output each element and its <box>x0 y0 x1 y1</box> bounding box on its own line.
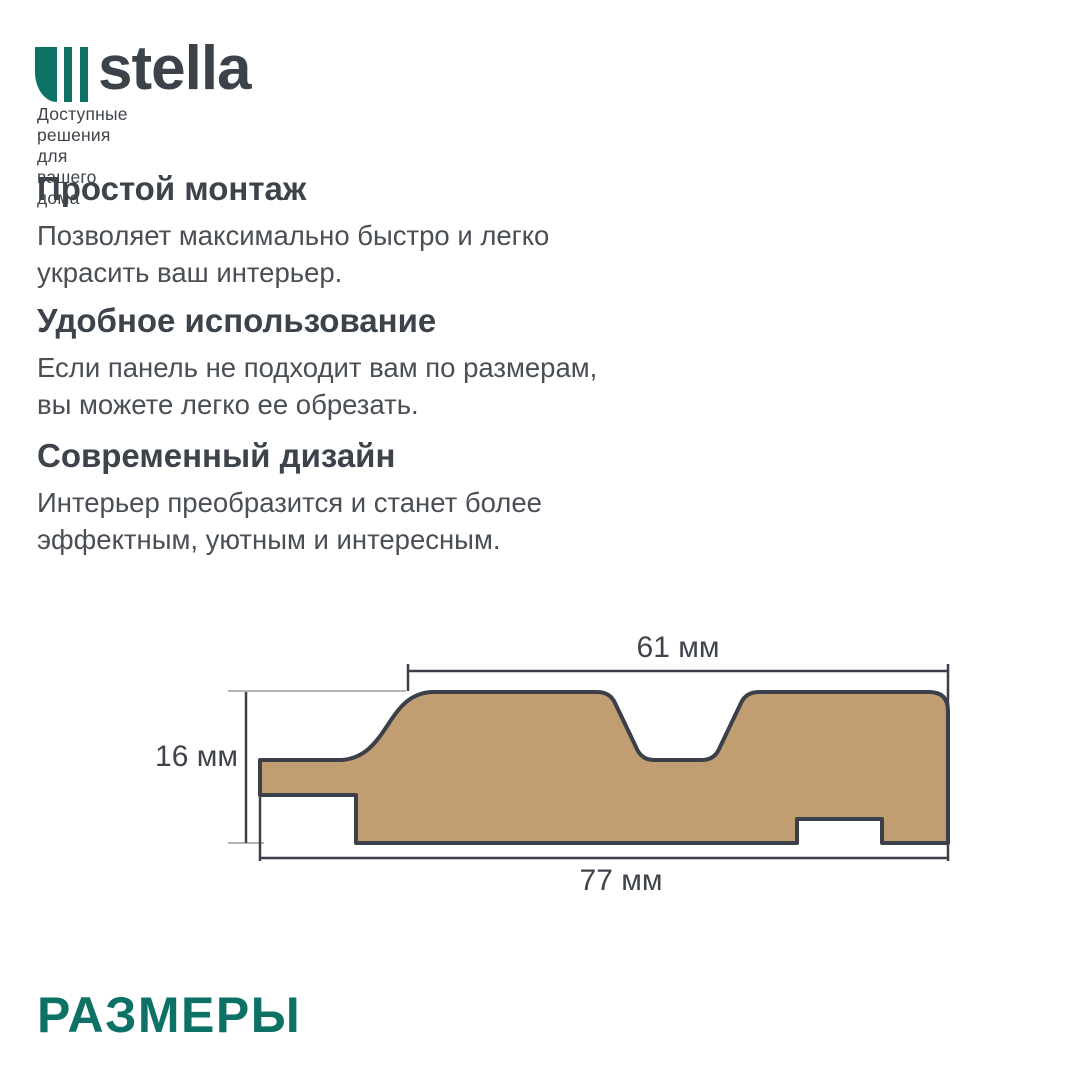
feature-body: Интерьер преобразится и станет более эфф… <box>37 484 542 558</box>
panel-dimensions-diagram: 16 мм 61 мм 77 мм <box>140 610 1000 910</box>
feature-title: Простой монтаж <box>37 168 549 209</box>
dimension-label-height: 16 мм <box>155 740 238 773</box>
feature-body: Если панель не подходит вам по размерам,… <box>37 349 597 423</box>
logo-bar-icon <box>35 47 57 102</box>
dimension-label-total-width: 77 мм <box>580 864 663 897</box>
logo-bar-icon <box>80 47 88 102</box>
feature-easy-use: Удобное использование Если панель не под… <box>37 300 597 423</box>
panel-cross-section <box>260 692 948 843</box>
feature-title: Современный дизайн <box>37 435 542 476</box>
dimension-label-rib-width: 61 мм <box>637 631 720 664</box>
brand-name: stella <box>98 36 251 102</box>
feature-easy-install: Простой монтаж Позволяет максимально быс… <box>37 168 549 291</box>
feature-modern-design: Современный дизайн Интерьер преобразится… <box>37 435 542 558</box>
logo-bar-icon <box>64 47 72 102</box>
feature-body: Позволяет максимально быстро и легко укр… <box>37 217 549 291</box>
stella-logo-icon <box>35 47 88 102</box>
feature-title: Удобное использование <box>37 300 597 341</box>
page-title: РАЗМЕРЫ <box>37 986 301 1044</box>
